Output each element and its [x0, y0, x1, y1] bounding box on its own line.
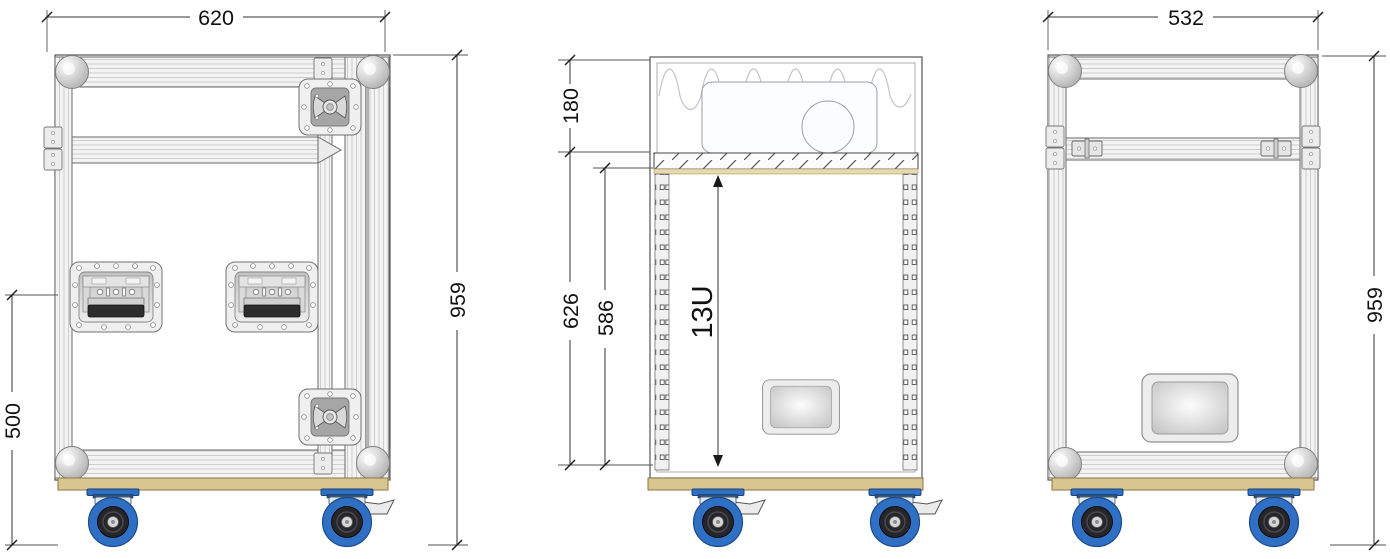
rear-corner-ball-top-left — [1049, 55, 1082, 88]
rear-right-column — [1300, 57, 1318, 478]
dim-front-width: 620 — [198, 6, 234, 30]
drawing-canvas: 620 959 500 180 626 — [0, 0, 1390, 559]
rear-recessed-dish — [1142, 374, 1238, 442]
case-three-view-drawing: 620 959 500 180 626 — [0, 0, 1390, 559]
lid-divider-hatched — [654, 153, 918, 169]
rear-left-column — [1048, 57, 1066, 478]
corner-ball-top-left — [56, 56, 89, 89]
dim-rack-units: 13U — [687, 285, 719, 338]
rear-castor-left — [1071, 489, 1123, 547]
front-castor-left — [87, 489, 139, 547]
rear-corner-ball-bottom-left — [1049, 448, 1082, 481]
section-castor-right — [869, 489, 942, 547]
rear-corner-ball-bottom-right — [1285, 448, 1318, 481]
section-recessed-dish — [763, 380, 840, 434]
front-wood-base — [58, 478, 388, 490]
rear-bottom-rail — [1048, 452, 1318, 478]
rear-corner-ball-top-right — [1285, 55, 1318, 88]
front-seam-plate-lower — [44, 149, 62, 170]
front-view — [44, 55, 394, 547]
rack-rail-right — [903, 174, 917, 470]
front-latch-top — [299, 79, 361, 135]
rear-seam-plate-right-lower — [1302, 148, 1320, 169]
dim-front-height: 959 — [446, 282, 470, 318]
rear-hinge-left — [1072, 139, 1102, 158]
front-seam-plate-top — [314, 58, 332, 79]
front-handle-right — [226, 262, 318, 332]
rack-rail-left — [655, 174, 669, 470]
rear-seam-plate-right-upper — [1302, 126, 1320, 147]
front-latch-bottom — [299, 389, 361, 445]
dim-rear-width: 532 — [1168, 6, 1204, 30]
dim-handle-height: 500 — [1, 403, 25, 439]
front-seam-plate-upper — [44, 127, 62, 148]
dim-rack-opening: 586 — [594, 300, 618, 336]
front-right-column-outer — [368, 57, 389, 478]
lid-foam-circle-cutout — [802, 101, 854, 153]
rear-seam-plate-left-lower — [1046, 148, 1064, 169]
section-wood-base — [648, 478, 923, 490]
dim-lid-depth: 180 — [559, 88, 583, 124]
front-handle-left — [70, 262, 162, 332]
corner-ball-bottom-right — [357, 447, 390, 480]
section-castor-left — [692, 489, 765, 547]
rear-seam-plate-left-upper — [1046, 126, 1064, 147]
front-seam-plate-bottom — [314, 453, 332, 474]
rear-wood-base — [1052, 478, 1314, 490]
front-left-column — [55, 57, 72, 478]
rear-view — [1046, 55, 1320, 547]
front-castor-right — [321, 489, 394, 547]
corner-ball-bottom-left — [56, 447, 89, 480]
dim-rear-height: 959 — [1363, 287, 1387, 323]
rear-castor-right — [1248, 489, 1300, 547]
rear-hinge-right — [1261, 139, 1291, 158]
divider-wood-edge — [654, 169, 918, 174]
rear-top-rail — [1048, 57, 1318, 79]
front-bottom-rail — [55, 450, 390, 478]
corner-ball-top-right — [357, 56, 390, 89]
front-lid-horizontal-seam — [72, 137, 318, 163]
dim-interior-height: 626 — [559, 293, 583, 329]
